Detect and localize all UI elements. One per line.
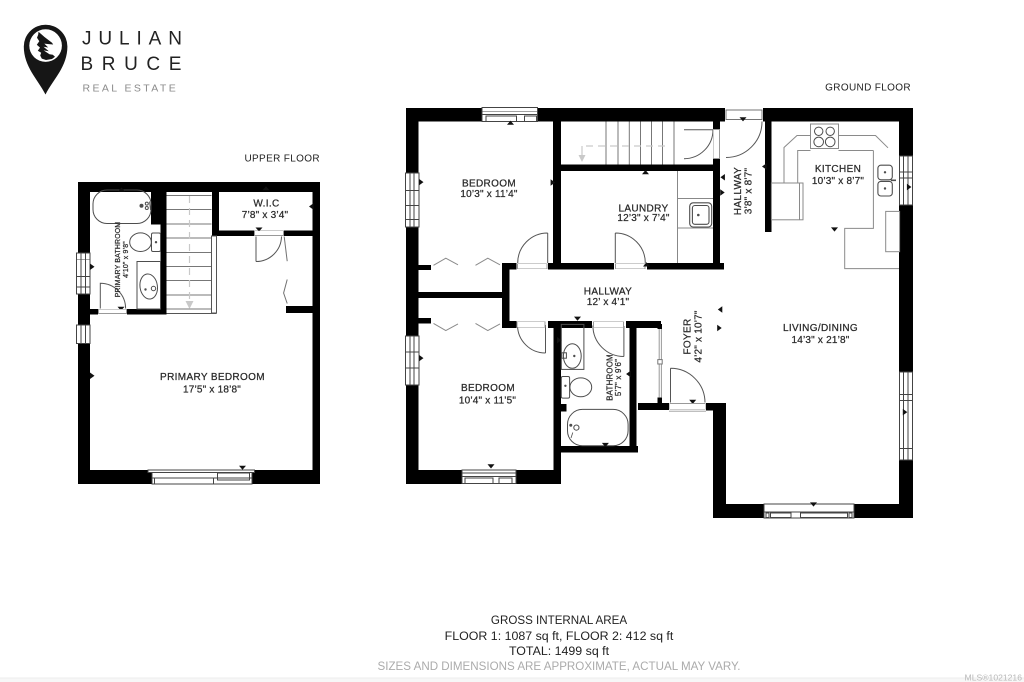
svg-text:TOTAL: 1499 sq ft: TOTAL: 1499 sq ft: [509, 644, 610, 658]
svg-text:10’3" x 8’7": 10’3" x 8’7": [812, 176, 865, 187]
svg-text:BEDROOM: BEDROOM: [461, 383, 515, 394]
svg-text:HALLWAY: HALLWAY: [733, 167, 744, 215]
svg-text:FLOOR 1: 1087 sq ft, FLOOR 2:: FLOOR 1: 1087 sq ft, FLOOR 2: 412 sq ft: [445, 629, 674, 643]
svg-text:12’3" x 7’4": 12’3" x 7’4": [617, 213, 670, 224]
svg-text:MLS®1021216: MLS®1021216: [965, 673, 1023, 682]
svg-text:3’8" x 8’7": 3’8" x 8’7": [744, 167, 755, 214]
svg-text:7’8" x 3’4": 7’8" x 3’4": [242, 210, 289, 221]
svg-text:HALLWAY: HALLWAY: [584, 287, 632, 298]
svg-text:10’3" x 11’4": 10’3" x 11’4": [460, 189, 518, 200]
svg-text:12’ x 4’1": 12’ x 4’1": [587, 297, 630, 308]
svg-text:14’3" x 21’8": 14’3" x 21’8": [791, 335, 849, 346]
svg-text:LIVING/DINING: LIVING/DINING: [783, 323, 858, 334]
svg-text:GROSS INTERNAL AREA: GROSS INTERNAL AREA: [491, 614, 627, 627]
svg-text:REAL ESTATE: REAL ESTATE: [83, 83, 179, 95]
svg-text:SIZES AND DIMENSIONS ARE APPRO: SIZES AND DIMENSIONS ARE APPROXIMATE, AC…: [378, 660, 741, 673]
svg-text:10’4" x 11’5": 10’4" x 11’5": [459, 396, 517, 407]
svg-text:5’7" x 9’6": 5’7" x 9’6": [614, 359, 623, 396]
svg-text:17’5" x 18’8": 17’5" x 18’8": [183, 385, 241, 396]
svg-text:BRUCE: BRUCE: [81, 54, 191, 75]
svg-text:UPPER FLOOR: UPPER FLOOR: [244, 154, 320, 165]
svg-text:FOYER: FOYER: [683, 318, 694, 354]
svg-text:BEDROOM: BEDROOM: [462, 179, 516, 190]
svg-text:4’10" x 9’8": 4’10" x 9’8": [123, 241, 130, 278]
svg-text:PRIMARY BATHROOM: PRIMARY BATHROOM: [115, 222, 122, 298]
svg-text:W.I.C: W.I.C: [253, 199, 279, 210]
svg-text:GROUND FLOOR: GROUND FLOOR: [825, 83, 911, 94]
svg-text:JULIAN: JULIAN: [82, 29, 189, 50]
svg-text:PRIMARY BEDROOM: PRIMARY BEDROOM: [160, 372, 265, 383]
svg-text:4’2" x 10’7": 4’2" x 10’7": [694, 310, 705, 363]
svg-text:KITCHEN: KITCHEN: [815, 164, 861, 175]
